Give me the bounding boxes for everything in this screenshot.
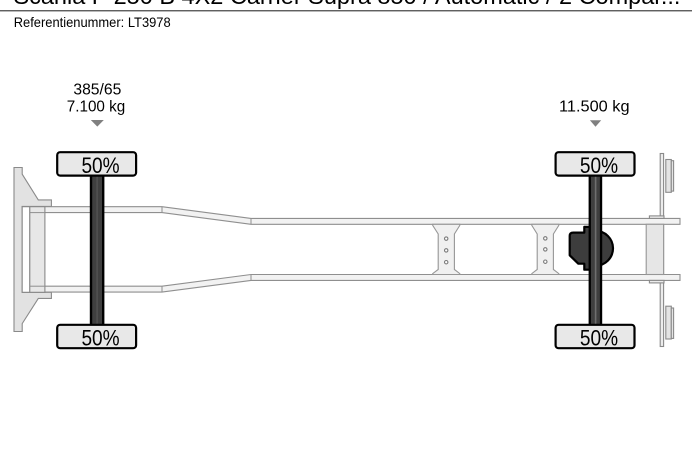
svg-text:50%: 50% [580,153,618,178]
svg-text:Referentienummer: LT3978: Referentienummer: LT3978 [14,14,171,30]
svg-text:50%: 50% [81,326,119,351]
svg-text:50%: 50% [580,326,618,351]
svg-text:385/65: 385/65 [73,82,121,99]
svg-text:11.500 kg: 11.500 kg [559,98,630,115]
svg-text:50%: 50% [81,153,119,178]
svg-text:Scania P 250 B 4X2 Carrier Sup: Scania P 250 B 4X2 Carrier Supra 850 / A… [13,0,680,9]
svg-text:7.100 kg: 7.100 kg [67,98,126,115]
